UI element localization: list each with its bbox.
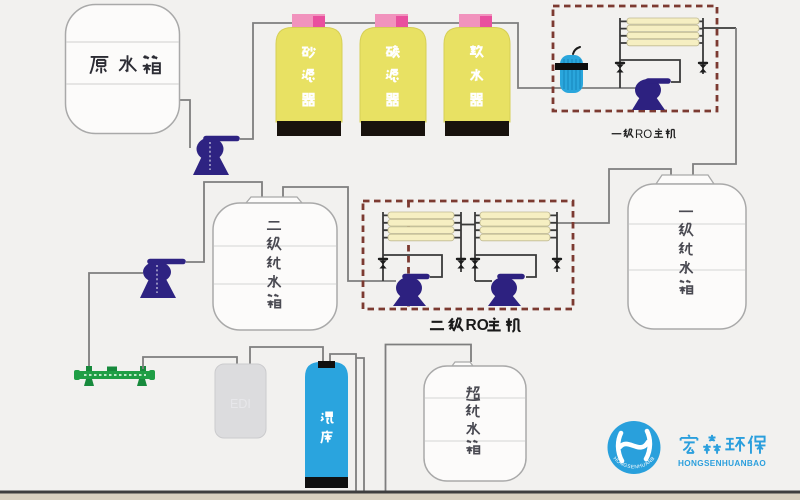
svg-text:RO: RO bbox=[466, 317, 489, 334]
svg-text:RO: RO bbox=[635, 129, 652, 141]
svg-text:EDI: EDI bbox=[230, 397, 251, 411]
svg-text:HONGSENHUANBAO: HONGSENHUANBAO bbox=[678, 459, 766, 468]
